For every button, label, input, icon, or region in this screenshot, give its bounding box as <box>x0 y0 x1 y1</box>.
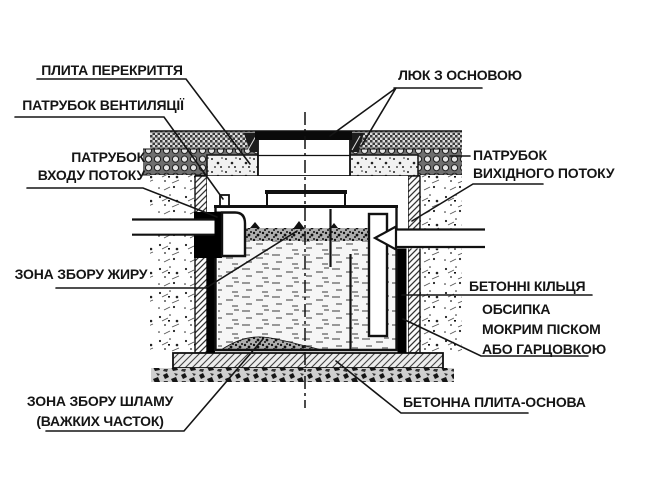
gravel-bed <box>151 368 454 382</box>
label-outlet-line2: ВИХІДНОГО ПОТОКУ <box>473 164 629 182</box>
label-backfill-line1: ОБСИПКА <box>482 299 606 319</box>
base-slab-drawing <box>173 353 443 368</box>
label-vent-pipe: ПАТРУБОК ВЕНТИЛЯЦІЇ <box>14 96 192 114</box>
label-sludge-line2: (ВАЖКИХ ЧАСТОК) <box>18 411 182 431</box>
manhole-riser <box>258 139 350 176</box>
label-sludge-zone: ЗОНА ЗБОРУ ШЛАМУ (ВАЖКИХ ЧАСТОК) <box>18 391 182 431</box>
label-cover-slab: ПЛИТА ПЕРЕКРИТТЯ <box>36 61 188 79</box>
label-backfill-line3: АБО ГАРЦОВКОЮ <box>482 339 606 359</box>
label-base-slab: БЕТОННА ПЛИТА-ОСНОВА <box>403 393 586 411</box>
label-backfill: ОБСИПКА МОКРИМ ПІСКОМ АБО ГАРЦОВКОЮ <box>482 299 606 359</box>
diagram-canvas: ПЛИТА ПЕРЕКРИТТЯ ПАТРУБОК ВЕНТИЛЯЦІЇ ПАТ… <box>0 0 650 487</box>
label-sludge-line1: ЗОНА ЗБОРУ ШЛАМУ <box>18 391 182 411</box>
label-backfill-line2: МОКРИМ ПІСКОМ <box>482 319 606 339</box>
label-grease-zone: ЗОНА ЗБОРУ ЖИРУ <box>12 265 150 283</box>
label-concrete-rings: БЕТОННІ КІЛЬЦЯ <box>469 277 585 295</box>
label-inlet-line2: ВХОДУ ПОТОКУ <box>18 166 145 184</box>
label-inlet-pipe: ПАТРУБОК ВХОДУ ПОТОКУ <box>18 148 145 184</box>
label-inlet-line1: ПАТРУБОК <box>18 148 145 166</box>
tank-lid-hat <box>265 191 347 206</box>
label-outlet-pipe: ПАТРУБОК ВИХІДНОГО ПОТОКУ <box>473 146 629 182</box>
label-manhole: ЛЮК З ОСНОВОЮ <box>390 66 530 84</box>
label-outlet-line1: ПАТРУБОК <box>473 146 629 164</box>
